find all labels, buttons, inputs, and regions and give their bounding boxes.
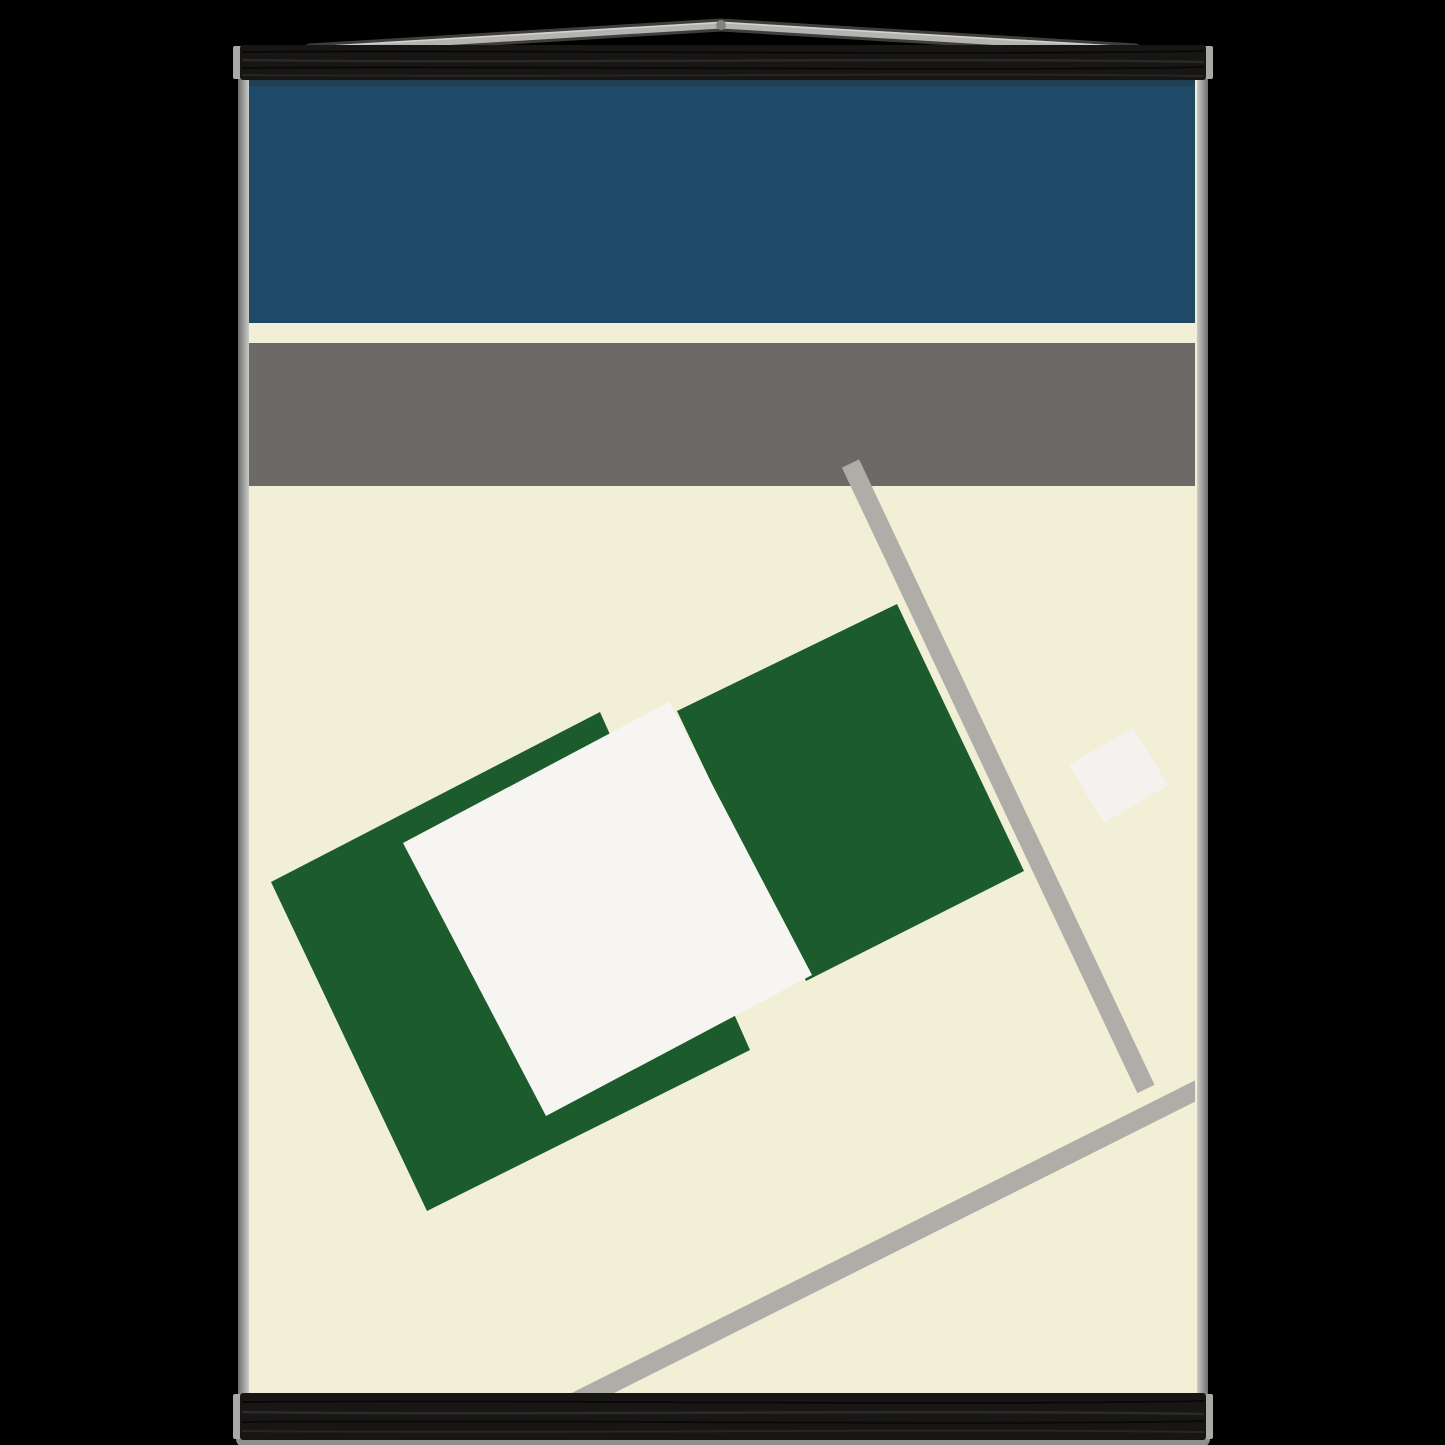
product-photo (0, 0, 1445, 1445)
hanger-bar-bottom (233, 1393, 1213, 1440)
hanger-bar-bottom-wood (240, 1393, 1206, 1440)
wood-grain-line (242, 1412, 1204, 1414)
top-bar-shadow-on-paper (240, 80, 1206, 86)
paper-edge-left (238, 56, 249, 1441)
wood-grain-line (242, 1431, 1204, 1432)
wood-grain-line (242, 75, 1204, 76)
wood-grain-line (242, 60, 1204, 62)
artwork-cream-divider (249, 323, 1195, 343)
artwork-blue-band (249, 56, 1195, 323)
poster-mockup-canvas (0, 0, 1445, 1445)
cord-knot (716, 20, 726, 30)
paper-edge-right (1197, 56, 1208, 1441)
hanger-bar-top (233, 45, 1213, 80)
artwork-gray-band (249, 343, 1195, 486)
